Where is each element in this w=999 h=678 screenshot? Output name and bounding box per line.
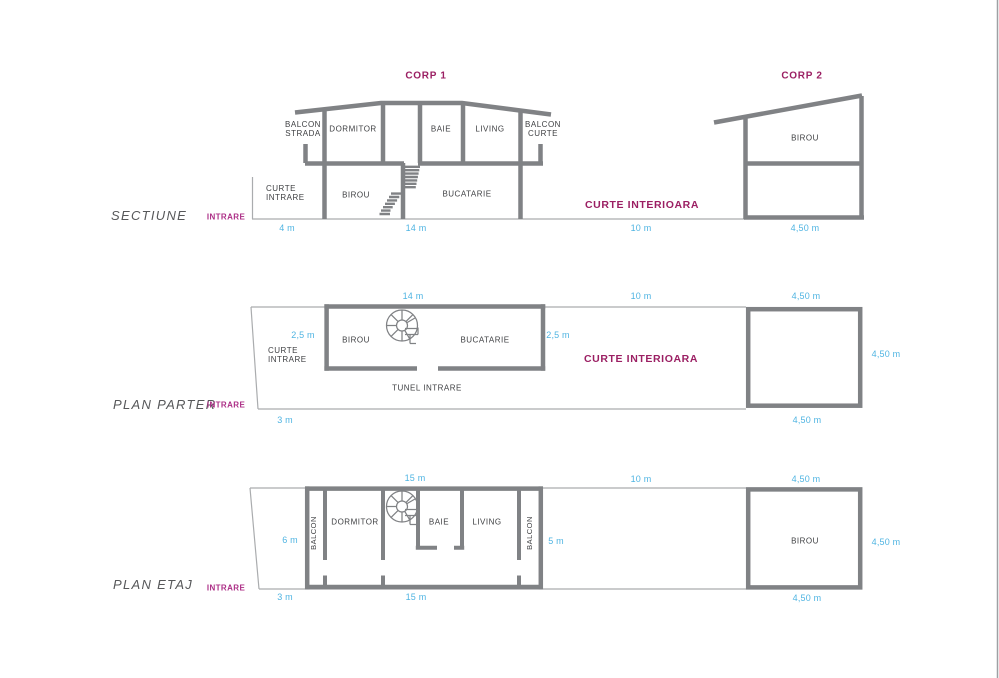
corp2-title: CORP 2 <box>781 71 822 82</box>
section-dim-corp1: 14 m <box>406 223 427 233</box>
parter-spiral-stair-icon <box>387 310 419 344</box>
parter-room-curte-intrare: CURTE INTRARE <box>268 347 318 365</box>
parter-dim-top-curte: 10 m <box>631 291 652 301</box>
architectural-drawing: SECTIUNE INTRARE CORP 1 CORP 2 BALCON ST… <box>0 0 999 678</box>
etaj-dim-top-curte: 10 m <box>631 474 652 484</box>
section-corp2-roof <box>714 96 862 123</box>
parter-dim-bottom-left: 3 m <box>277 415 293 425</box>
etaj-view-title: PLAN ETAJ <box>113 577 193 592</box>
etaj-room-living: LIVING <box>472 519 501 528</box>
section-view-title: SECTIUNE <box>111 208 187 223</box>
etaj-dim-top-corp1: 15 m <box>405 473 426 483</box>
stairs-upper-flight <box>405 167 421 187</box>
stairs-lower-flight <box>380 194 402 214</box>
section-room-baie: BAIE <box>431 126 451 135</box>
section-balcony-railings <box>306 144 541 163</box>
parter-view-title: PLAN PARTER <box>113 397 216 412</box>
section-room-living: LIVING <box>475 126 504 135</box>
parter-room-bucatarie: BUCATARIE <box>460 337 509 346</box>
section-room-bucatarie: BUCATARIE <box>442 191 491 200</box>
etaj-entrance-label: INTRARE <box>207 584 245 593</box>
etaj-partition-walls <box>325 490 519 585</box>
etaj-room-balcon-strada: BALCON <box>310 516 318 550</box>
parter-dim-left-depth: 2,5 m <box>291 330 315 340</box>
walls <box>295 96 864 590</box>
section-dim-curte-interioara: 10 m <box>631 223 652 233</box>
etaj-dim-corp2-side: 4,50 m <box>872 537 901 547</box>
section-curte-interioara-label: CURTE INTERIOARA <box>585 199 699 211</box>
section-dim-curte-intrare: 4 m <box>279 223 295 233</box>
parter-corp2-outline <box>748 309 860 406</box>
etaj-spiral-stair-icon <box>387 491 419 525</box>
etaj-dim-right-height: 5 m <box>548 536 564 546</box>
spiral-stairs <box>387 310 419 525</box>
section-staircase <box>380 167 421 214</box>
parter-dim-bottom-corp2: 4,50 m <box>793 415 822 425</box>
parter-dim-top-corp2: 4,50 m <box>792 291 821 301</box>
etaj-room-dormitor: DORMITOR <box>331 519 378 528</box>
section-dim-corp2: 4,50 m <box>791 223 820 233</box>
corp1-title: CORP 1 <box>405 71 446 82</box>
section-corp2-birou: BIROU <box>791 135 819 144</box>
section-room-balcon-curte: BALCON CURTE <box>519 121 567 139</box>
etaj-corp2-birou: BIROU <box>791 538 819 547</box>
parter-room-birou: BIROU <box>342 337 370 346</box>
parter-dim-top-corp1: 14 m <box>403 291 424 301</box>
etaj-dim-left-height: 6 m <box>282 535 298 545</box>
etaj-room-balcon-curte: BALCON <box>526 516 534 550</box>
parter-tunel-intrare-label: TUNEL INTRARE <box>392 385 462 394</box>
etaj-dim-top-corp2: 4,50 m <box>792 474 821 484</box>
etaj-dim-bottom-left: 3 m <box>277 592 293 602</box>
etaj-room-baie: BAIE <box>429 519 449 528</box>
section-room-birou: BIROU <box>342 192 370 201</box>
section-entrance-label: INTRARE <box>207 213 245 222</box>
section-room-dormitor: DORMITOR <box>329 126 376 135</box>
parter-entrance-label: INTRARE <box>207 401 245 410</box>
parter-dim-corp2-side: 4,50 m <box>872 349 901 359</box>
section-room-curte-intrare: CURTE INTRARE <box>266 185 316 203</box>
parter-dim-right-depth: 2,5 m <box>546 330 570 340</box>
etaj-dim-bottom-corp1: 15 m <box>406 592 427 602</box>
parter-curte-interioara-label: CURTE INTERIOARA <box>584 353 698 365</box>
section-corp1-roof <box>295 103 551 115</box>
etaj-dim-bottom-corp2: 4,50 m <box>793 593 822 603</box>
section-room-balcon-strada: BALCON STRADA <box>279 121 327 139</box>
